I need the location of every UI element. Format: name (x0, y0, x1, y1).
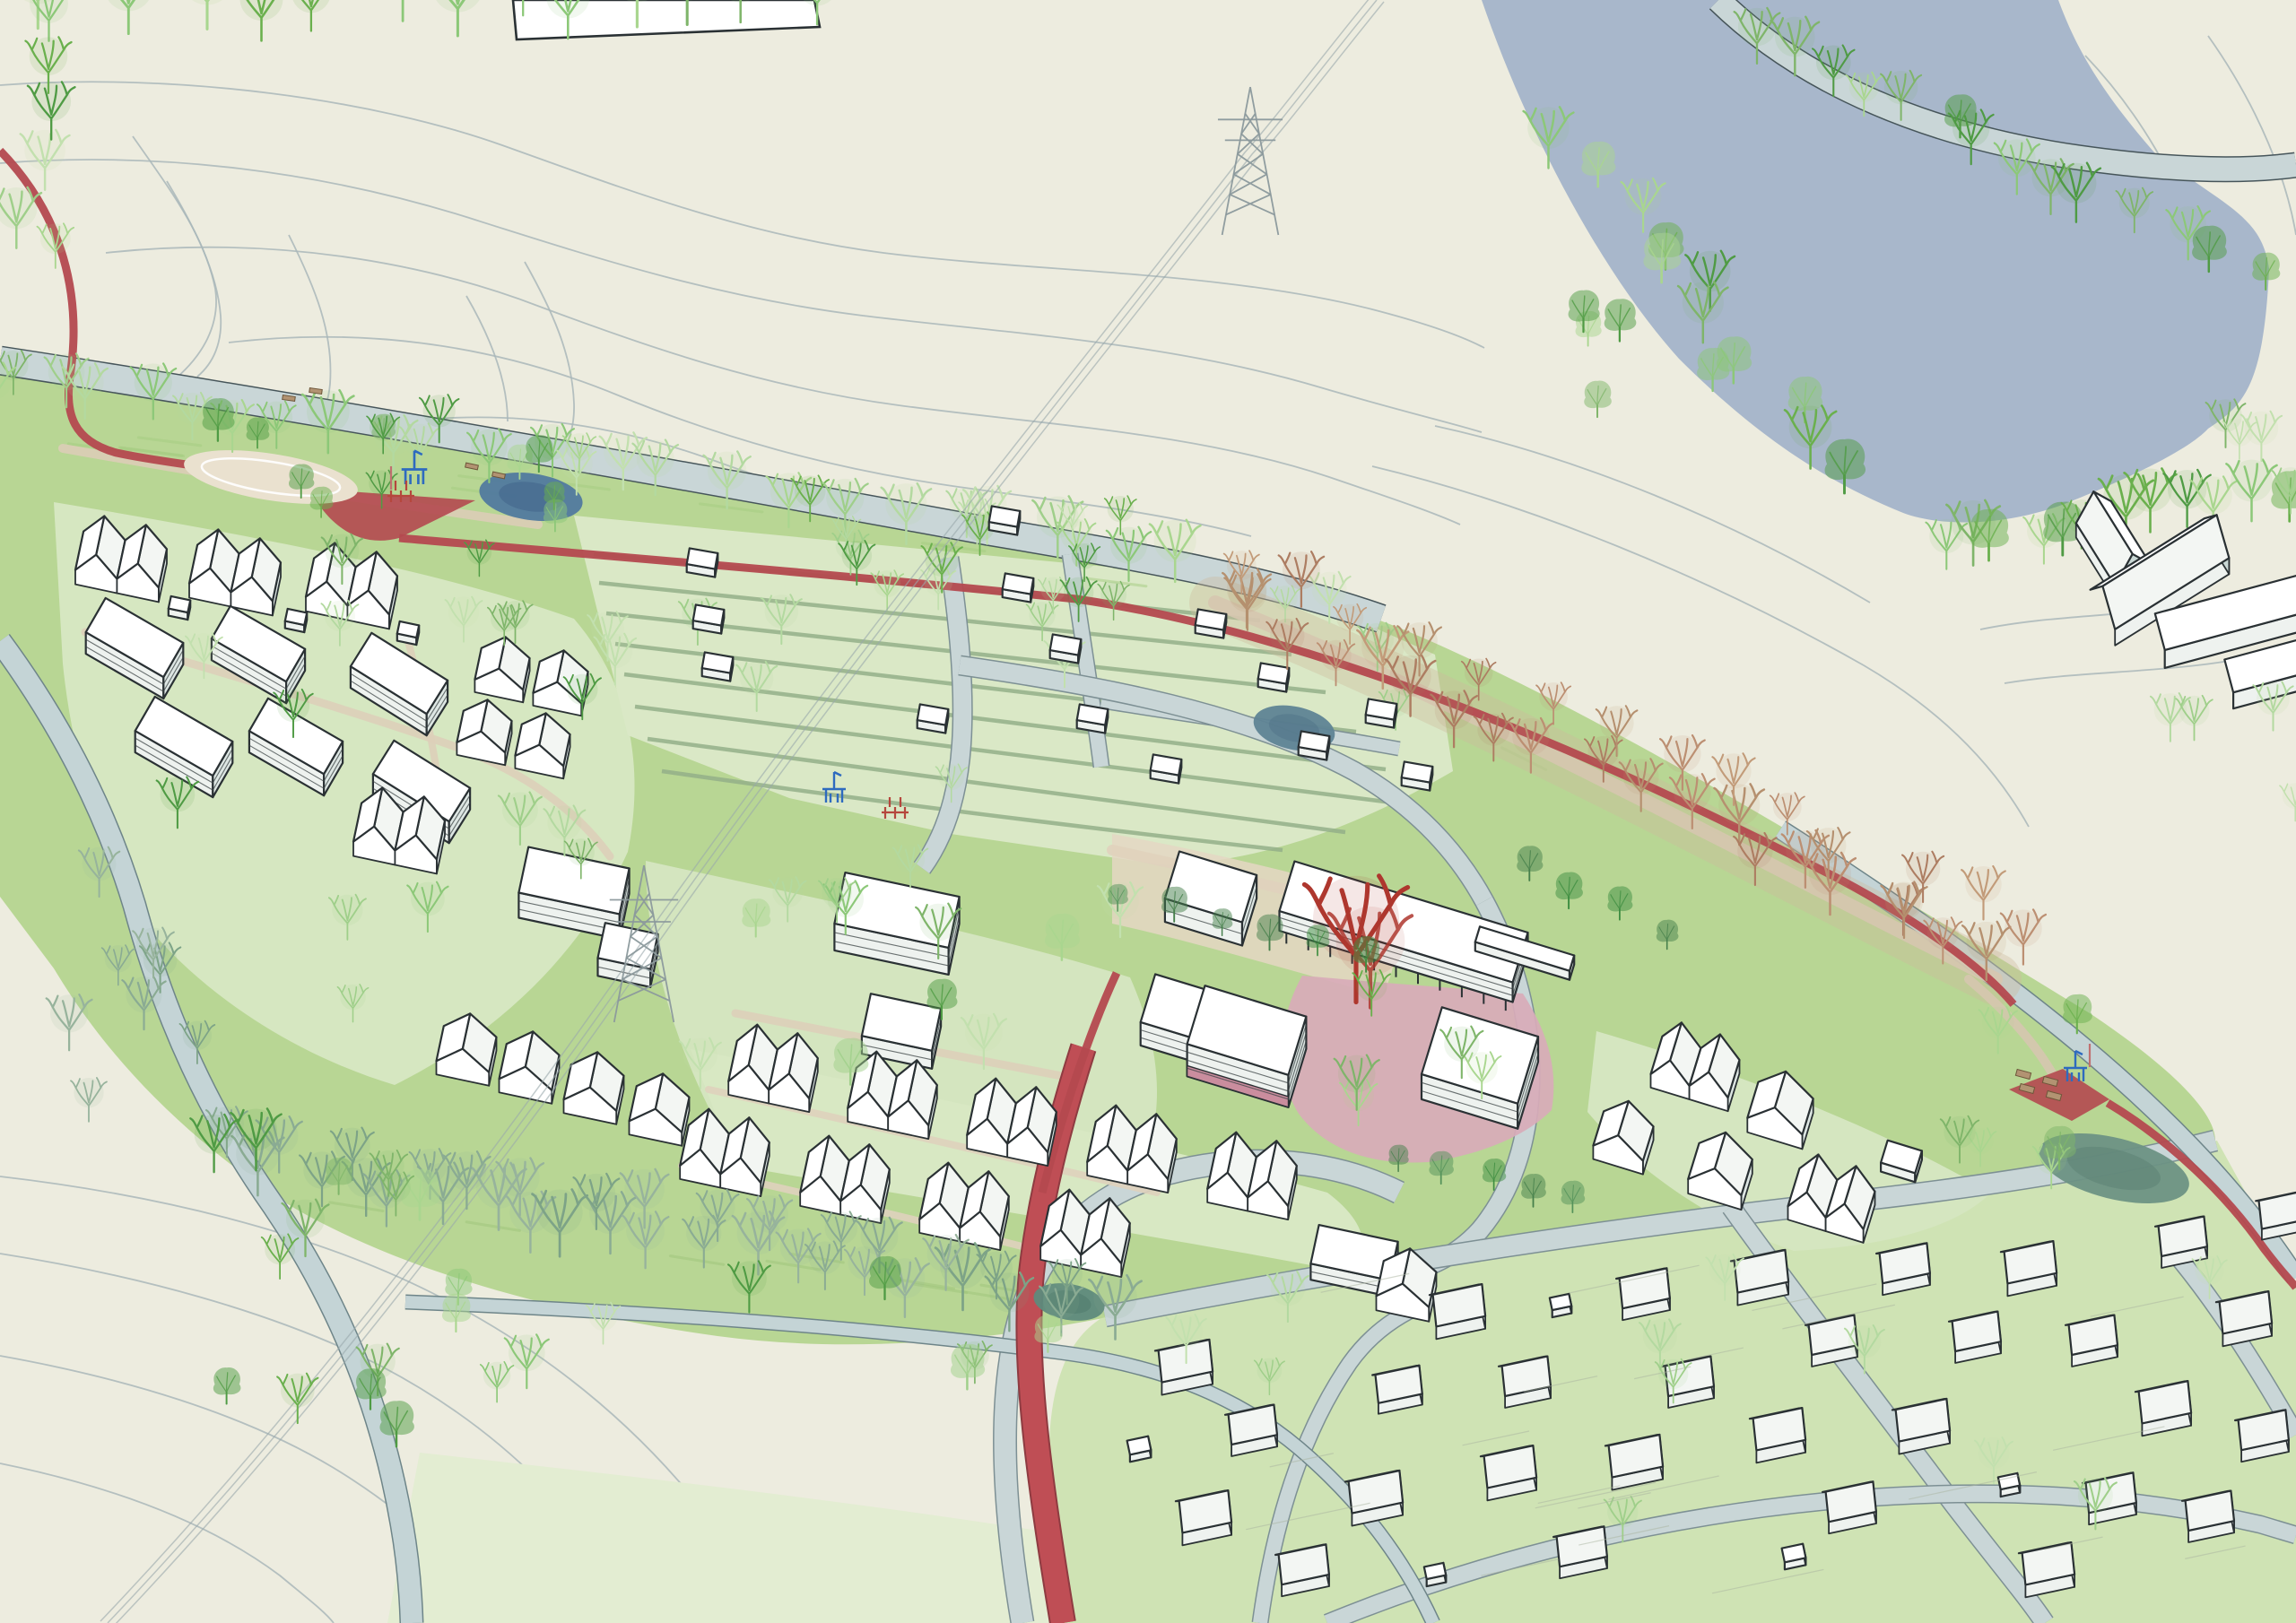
building-house (1155, 1340, 1213, 1395)
building-block (1151, 754, 1182, 783)
building-house (2001, 1241, 2057, 1296)
building-house (2135, 1381, 2191, 1436)
building-block (989, 506, 1021, 534)
building-block (169, 596, 190, 620)
building-block (1003, 573, 1034, 602)
building-house (1225, 1405, 1277, 1456)
building-house (1275, 1544, 1329, 1596)
building-block (397, 621, 419, 645)
building-block (693, 604, 725, 633)
building-house (1876, 1243, 1930, 1295)
building-block (1127, 1436, 1152, 1462)
building-house (2256, 1192, 2296, 1240)
building-house (1949, 1312, 2001, 1363)
building-block (1258, 663, 1290, 691)
building-house (2182, 1491, 2234, 1542)
building-block (285, 609, 307, 632)
building-house (1822, 1481, 1876, 1533)
building-house (1499, 1357, 1551, 1408)
building-house (1892, 1399, 1950, 1454)
building-block (1196, 609, 1227, 638)
building-house (1430, 1284, 1485, 1339)
masterplan-canvas (0, 0, 2296, 1623)
building-block (918, 704, 949, 733)
building-block (1782, 1544, 1806, 1570)
building-house (2066, 1315, 2118, 1367)
building-block (1550, 1294, 1571, 1317)
building-block (1077, 704, 1109, 733)
building-block (687, 548, 718, 577)
building-block (1299, 731, 1330, 759)
building-block (1366, 699, 1397, 727)
building-house (2019, 1542, 2074, 1597)
building-house (1750, 1408, 1805, 1462)
building-house (1176, 1490, 1231, 1545)
building-house (2216, 1291, 2272, 1346)
building-house (2235, 1410, 2289, 1462)
building-block (1424, 1563, 1446, 1586)
building-block (1050, 634, 1082, 663)
building-house (1372, 1366, 1422, 1414)
building-house (1605, 1435, 1663, 1490)
building-house (1616, 1268, 1670, 1320)
masterplan-illustration (0, 0, 2296, 1623)
building-house (1553, 1526, 1607, 1578)
building-block (1402, 761, 1433, 790)
building-house (1481, 1445, 1536, 1500)
building-block (702, 652, 734, 681)
building-house (1731, 1250, 1788, 1306)
building-house (1345, 1471, 1403, 1526)
